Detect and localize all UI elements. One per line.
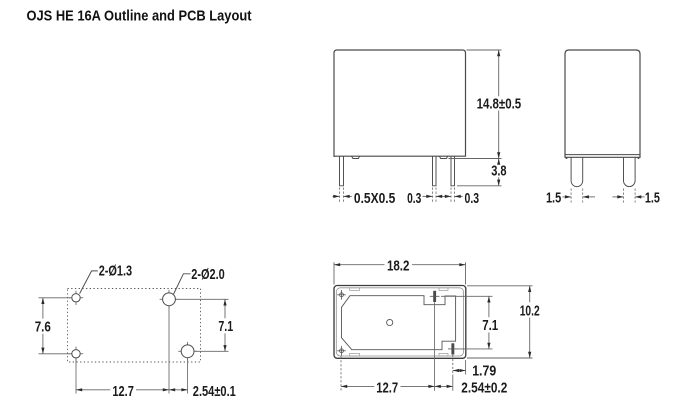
svg-text:1.5: 1.5	[645, 190, 660, 207]
svg-text:3.8: 3.8	[491, 163, 506, 180]
svg-text:7.6: 7.6	[35, 319, 51, 336]
svg-text:7.1: 7.1	[482, 317, 498, 334]
svg-text:0.5X0.5: 0.5X0.5	[354, 190, 395, 207]
svg-text:1.5: 1.5	[546, 190, 561, 207]
svg-text:14.8±0.5: 14.8±0.5	[477, 95, 522, 112]
svg-text:0.3: 0.3	[465, 190, 480, 207]
svg-text:18.2: 18.2	[387, 258, 410, 275]
svg-text:2-Ø2.0: 2-Ø2.0	[191, 266, 225, 283]
svg-text:12.7: 12.7	[376, 379, 398, 396]
svg-text:0.3: 0.3	[407, 190, 421, 207]
svg-text:2.54±0.1: 2.54±0.1	[193, 383, 236, 400]
svg-text:12.7: 12.7	[112, 383, 134, 400]
svg-text:2-Ø1.3: 2-Ø1.3	[99, 263, 132, 280]
svg-text:10.2: 10.2	[520, 302, 540, 319]
svg-text:1.79: 1.79	[472, 363, 496, 380]
svg-text:2.54±0.2: 2.54±0.2	[461, 379, 507, 396]
svg-text:7.1: 7.1	[218, 318, 233, 335]
svg-text:OJS HE 16A Outline and PCB Lay: OJS HE 16A Outline and PCB Layout	[27, 7, 252, 24]
